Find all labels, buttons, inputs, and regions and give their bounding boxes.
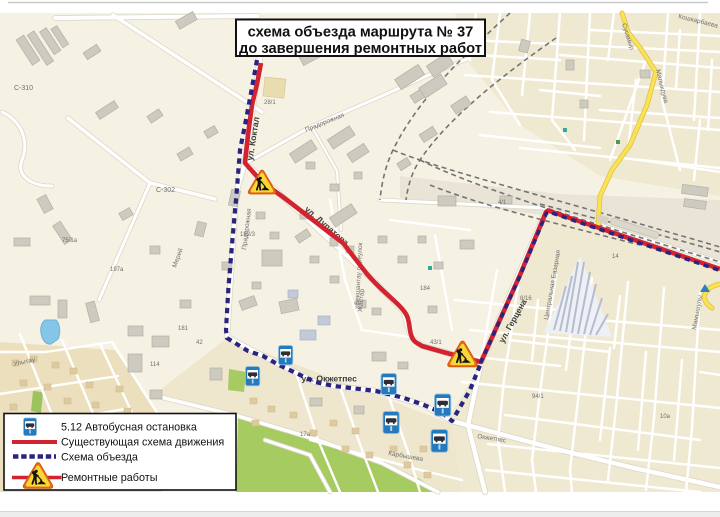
svg-text:4/1: 4/1	[498, 200, 507, 206]
svg-text:С-310: С-310	[14, 85, 33, 92]
svg-text:94/1: 94/1	[532, 394, 544, 400]
svg-text:10а: 10а	[660, 414, 671, 420]
svg-text:С-302: С-302	[156, 187, 175, 194]
svg-text:181: 181	[178, 326, 189, 332]
svg-text:28/1: 28/1	[264, 100, 276, 106]
svg-text:17а: 17а	[300, 432, 311, 438]
svg-text:5.12 Автобусная остановка: 5.12 Автобусная остановка	[61, 422, 197, 434]
svg-text:114: 114	[150, 362, 160, 368]
svg-text:14: 14	[612, 254, 619, 260]
svg-text:Схема объезда: Схема объезда	[61, 452, 138, 464]
svg-text:42: 42	[196, 340, 203, 346]
svg-text:184: 184	[420, 286, 431, 292]
svg-text:197а: 197а	[110, 267, 124, 273]
svg-text:75/1а: 75/1а	[62, 238, 78, 244]
svg-text:Существующая схема движения: Существующая схема движения	[61, 437, 224, 449]
svg-text:8/16: 8/16	[520, 296, 532, 302]
svg-text:Ремонтные работы: Ремонтные работы	[61, 472, 158, 484]
svg-text:43/1: 43/1	[430, 340, 442, 346]
svg-text:схема объезда маршрута № 37: схема объезда маршрута № 37	[248, 25, 474, 41]
svg-text:до завершения ремонтных работ: до завершения ремонтных работ	[239, 41, 482, 57]
svg-text:182/3: 182/3	[240, 232, 256, 238]
